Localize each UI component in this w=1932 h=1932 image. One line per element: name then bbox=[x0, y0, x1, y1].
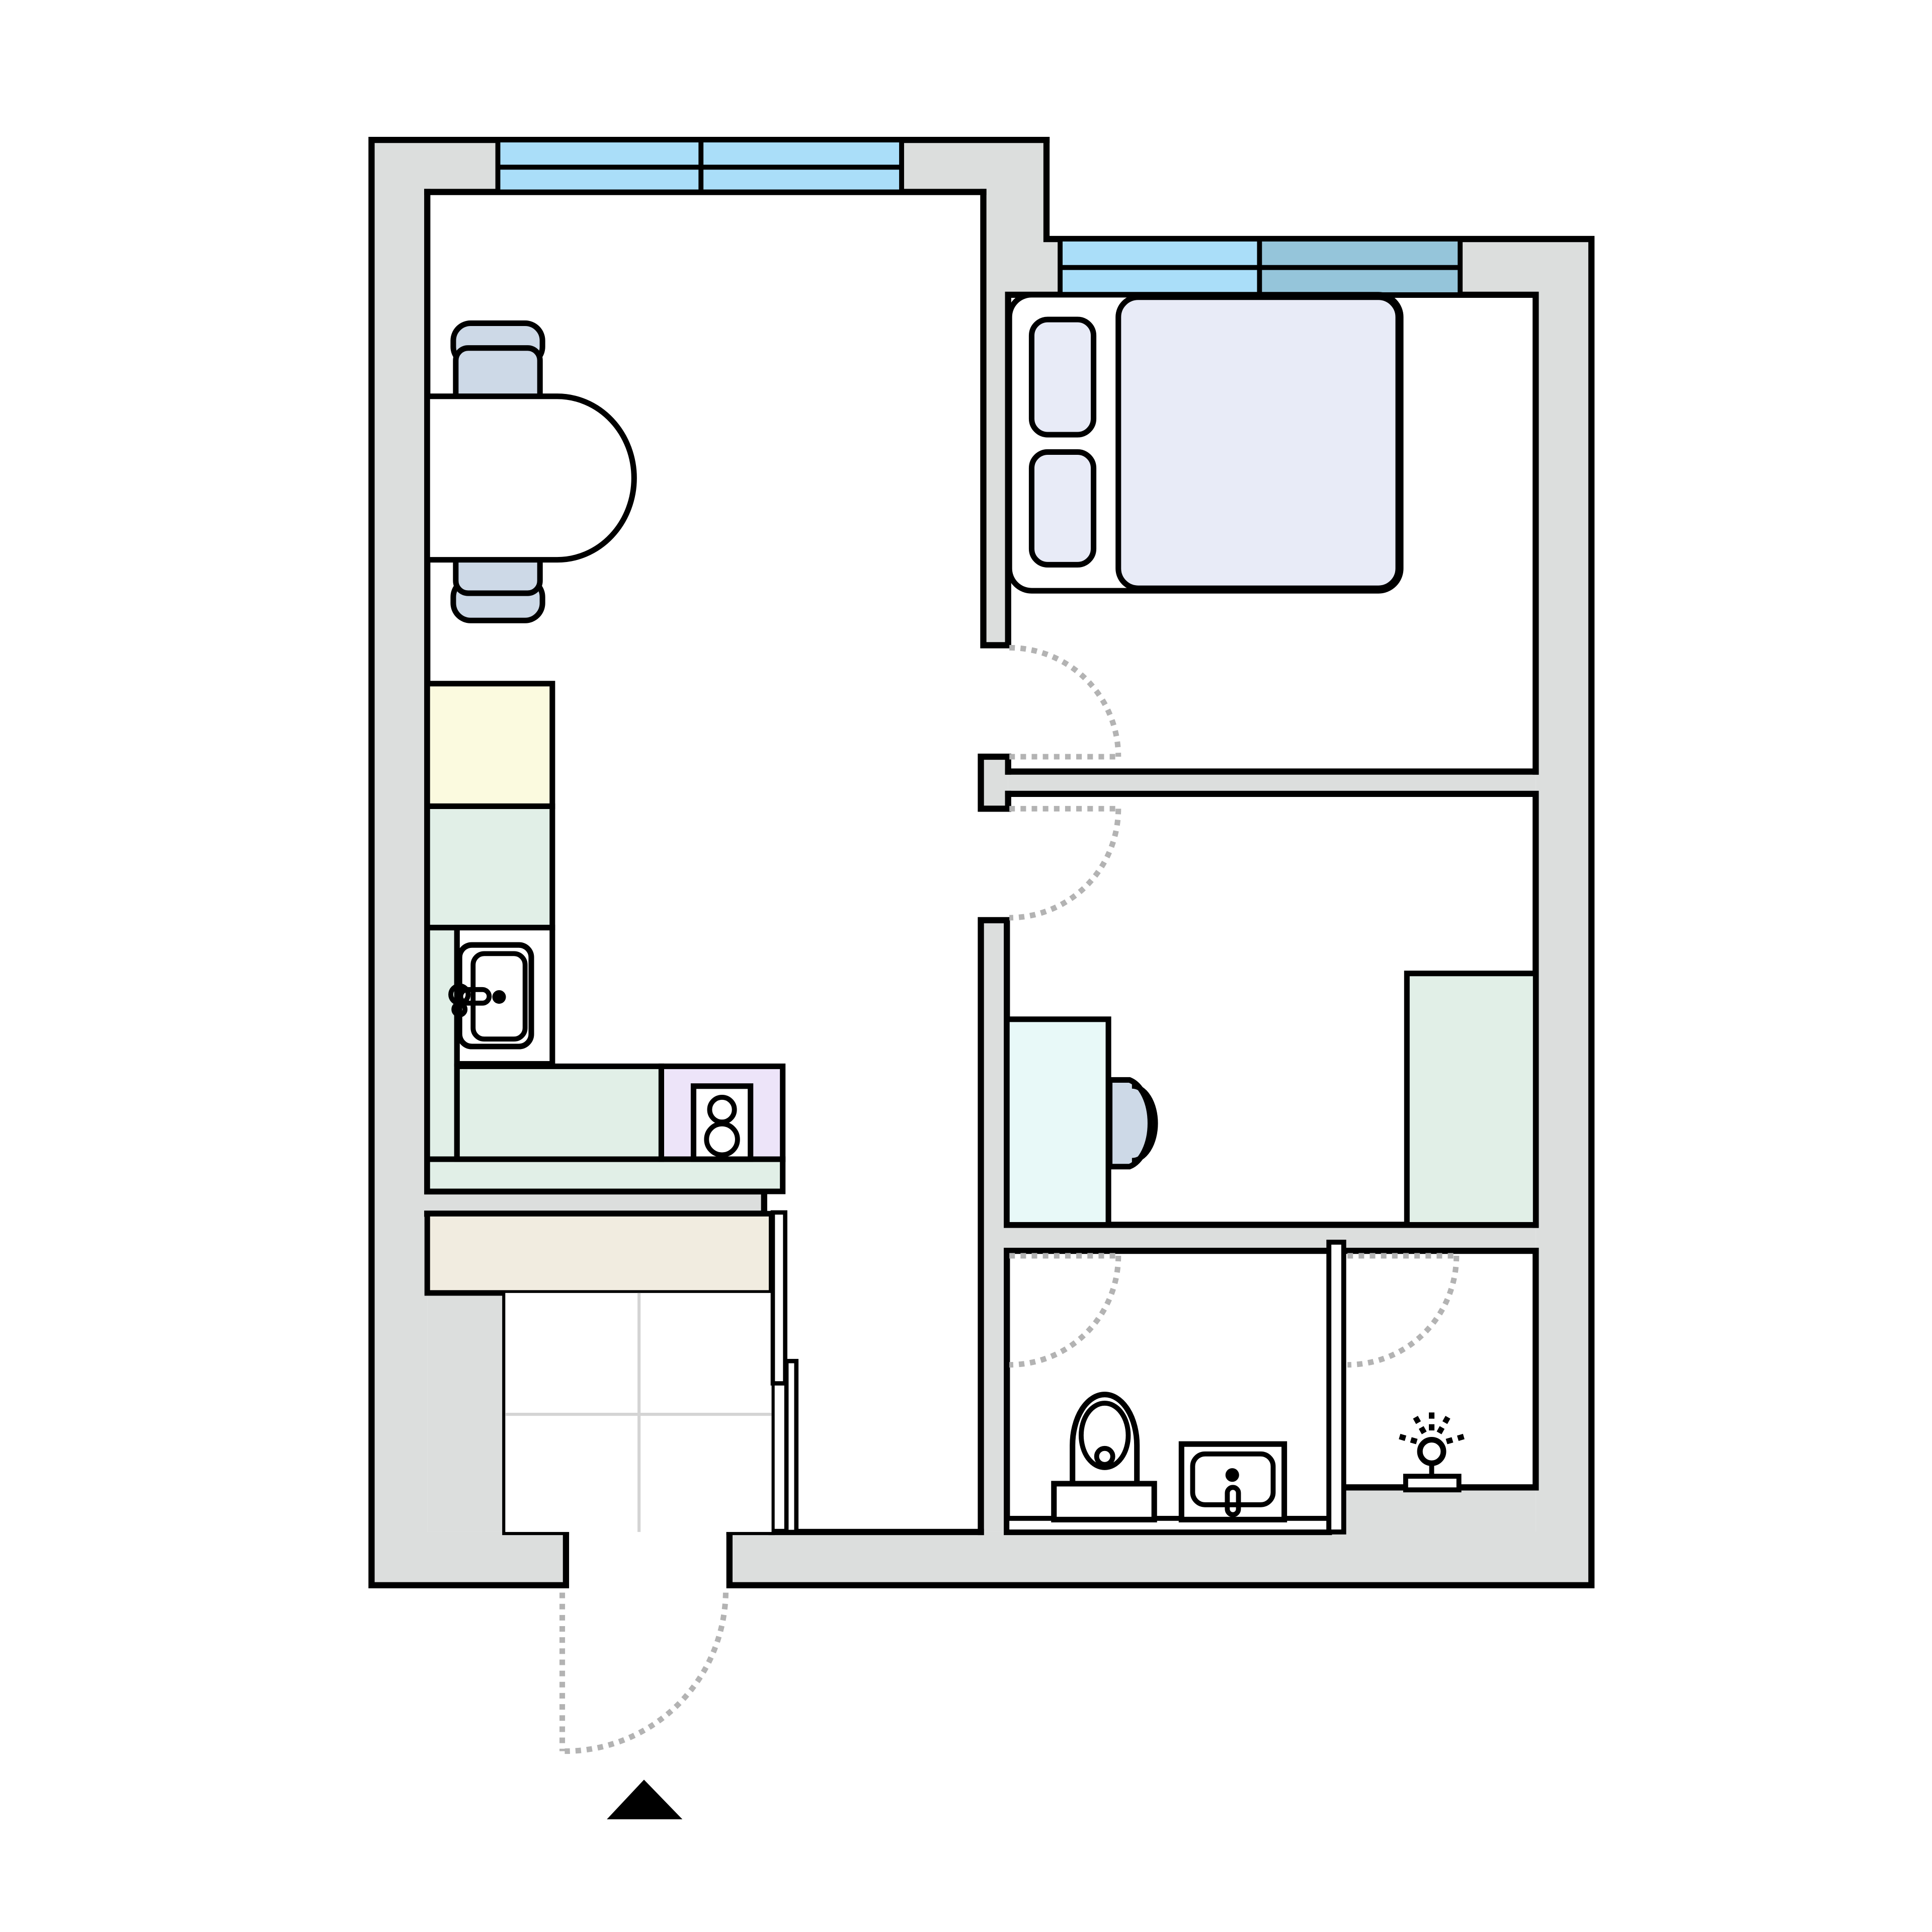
counter-lower bbox=[457, 1066, 661, 1159]
pillow-right bbox=[1031, 452, 1093, 565]
wall-kitchen-band bbox=[371, 1191, 764, 1214]
wall-lamp-room-bottom bbox=[1344, 1487, 1536, 1585]
lamp-icon bbox=[1420, 1440, 1443, 1464]
storage-cabinet bbox=[1407, 974, 1536, 1225]
dining-table bbox=[427, 396, 634, 560]
wall-office-bottom bbox=[981, 1225, 1536, 1251]
wall-entry-inset bbox=[427, 1293, 505, 1532]
counter-bottom-band bbox=[427, 1159, 782, 1191]
wall-left bbox=[371, 140, 427, 1585]
wardrobe bbox=[427, 1214, 771, 1293]
sink-faucet-dot-icon bbox=[1226, 1468, 1239, 1482]
wall-divider-upper bbox=[983, 192, 1008, 646]
bed-mattress bbox=[1118, 297, 1398, 588]
desk bbox=[1007, 1019, 1108, 1225]
toilet-cistern bbox=[1054, 1484, 1154, 1519]
floor-plan bbox=[0, 0, 1932, 1932]
wall-bottom-left bbox=[371, 1532, 566, 1585]
pillow-left bbox=[1031, 319, 1093, 435]
glass-partition bbox=[1329, 1242, 1344, 1532]
counter-strip bbox=[427, 928, 457, 1191]
wall-bedroom-office bbox=[1008, 772, 1536, 794]
sliding-door-leaf-lower bbox=[786, 1361, 796, 1532]
page-background bbox=[0, 0, 1932, 1932]
sliding-door-leaf-upper bbox=[773, 1213, 785, 1384]
lamp-base bbox=[1406, 1476, 1459, 1490]
drain-dot-icon bbox=[492, 990, 506, 1004]
wall-right bbox=[1536, 239, 1591, 1585]
wall-door-cap bbox=[981, 757, 1008, 809]
counter-upper bbox=[427, 806, 552, 927]
fridge bbox=[427, 684, 552, 807]
